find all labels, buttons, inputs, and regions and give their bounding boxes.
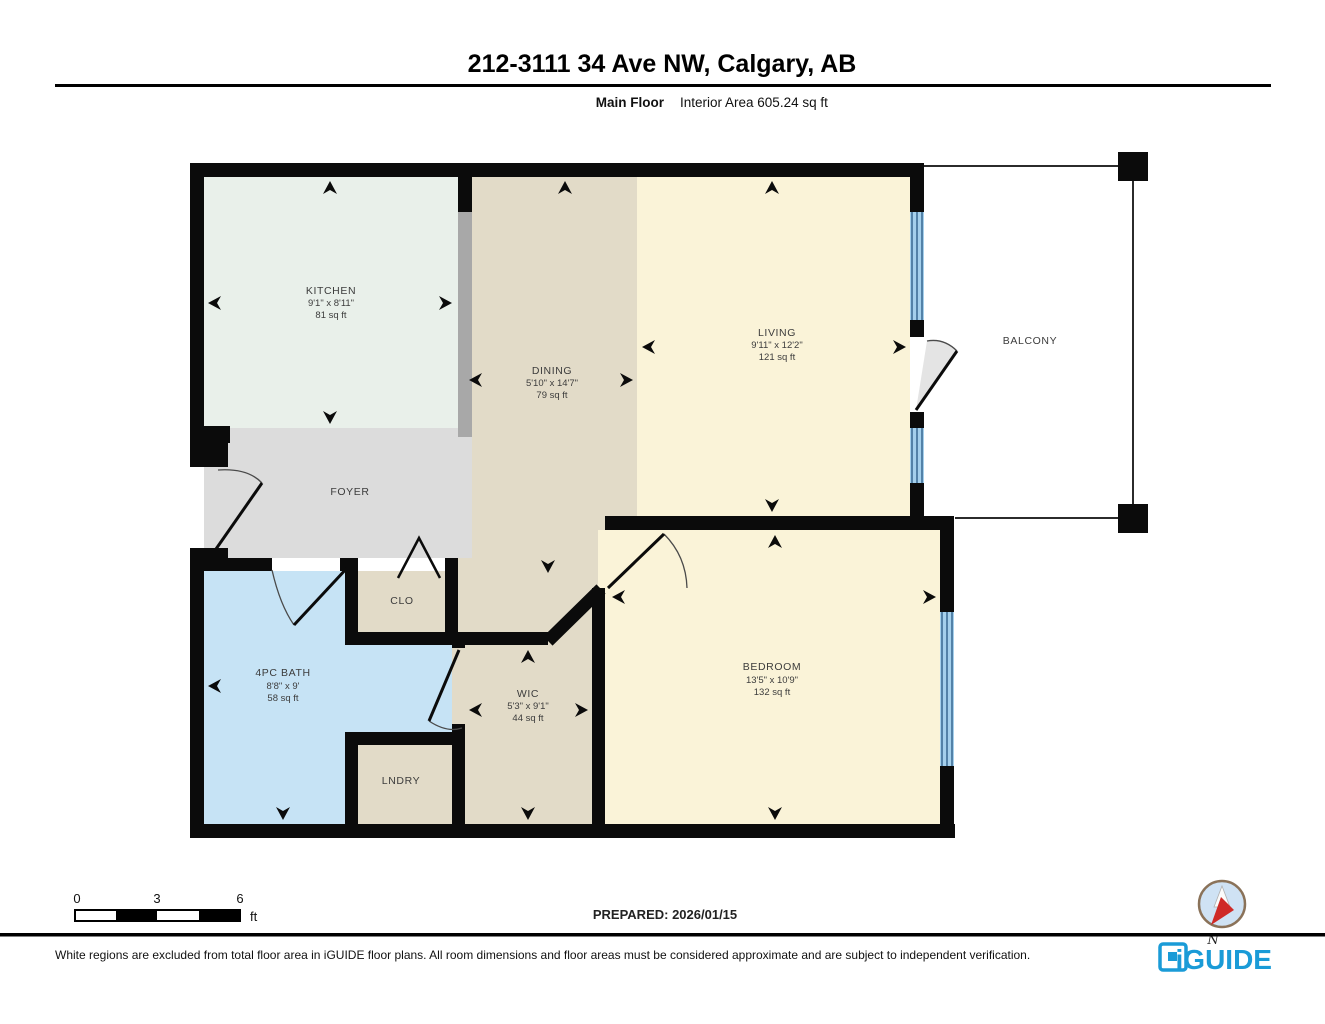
balcony-post-bottom — [1118, 504, 1148, 533]
floorplan-canvas: 212-3111 34 Ave NW, Calgary, AB Main Flo… — [0, 0, 1325, 1024]
interior-area-label: Interior Area 605.24 sq ft — [680, 95, 828, 110]
living-dims: 9'11" x 12'2" — [751, 340, 802, 351]
kitchen-label: KITCHEN — [306, 285, 356, 297]
prepared-date: PREPARED: 2026/01/15 — [593, 907, 737, 922]
living-label: LIVING — [758, 327, 796, 339]
footer-rule — [0, 933, 1325, 937]
kitchen-counter-divider — [458, 212, 472, 437]
room-bath-extension — [352, 645, 452, 732]
iguide-logo: iGUIDE — [1160, 944, 1272, 975]
scale-tick-6: 6 — [236, 891, 243, 906]
scale-bar-segment — [199, 910, 240, 921]
scale-unit: ft — [250, 909, 258, 924]
compass-icon: N — [1199, 881, 1245, 948]
header-rule — [55, 84, 1271, 87]
iguide-wordmark: iGUIDE — [1176, 944, 1272, 975]
bedroom-label: BEDROOM — [743, 661, 801, 673]
bedroom-area: 132 sq ft — [754, 687, 791, 698]
bedroom-window — [940, 612, 954, 766]
bedroom-dims: 13'5" x 10'9" — [746, 675, 798, 686]
wic-dims: 5'3" x 9'1" — [507, 701, 549, 712]
living-area: 121 sq ft — [759, 352, 796, 363]
bath-area: 58 sq ft — [267, 693, 299, 704]
page-title: 212-3111 34 Ave NW, Calgary, AB — [468, 50, 857, 78]
wic-area: 44 sq ft — [512, 713, 544, 724]
dining-area: 79 sq ft — [536, 390, 568, 401]
kitchen-dims: 9'1" x 8'11" — [308, 298, 354, 309]
bath-label: 4PC BATH — [255, 667, 310, 679]
wic-label: WIC — [517, 688, 539, 700]
foyer-label: FOYER — [330, 486, 369, 498]
closet-label: CLO — [390, 595, 413, 607]
floor-label: Main Floor — [596, 95, 665, 110]
room-wic — [452, 645, 592, 824]
living-window-bottom — [910, 428, 924, 483]
balcony-label: BALCONY — [1003, 335, 1057, 347]
disclaimer-text: White regions are excluded from total fl… — [55, 948, 1030, 962]
scale-bar: 0 3 6 ft — [73, 891, 257, 924]
room-fills — [204, 177, 940, 824]
dining-label: DINING — [532, 365, 572, 377]
kitchen-area: 81 sq ft — [315, 310, 347, 321]
balcony-door — [916, 340, 957, 410]
scale-bar-segment — [116, 910, 157, 921]
laundry-label: LNDRY — [382, 775, 420, 787]
dining-dims: 5'10" x 14'7" — [526, 378, 578, 389]
balcony-post-top — [1118, 152, 1148, 181]
scale-tick-0: 0 — [73, 891, 80, 906]
living-window-top — [910, 212, 924, 320]
bath-dims: 8'8" x 9' — [267, 681, 300, 692]
scale-tick-3: 3 — [153, 891, 160, 906]
